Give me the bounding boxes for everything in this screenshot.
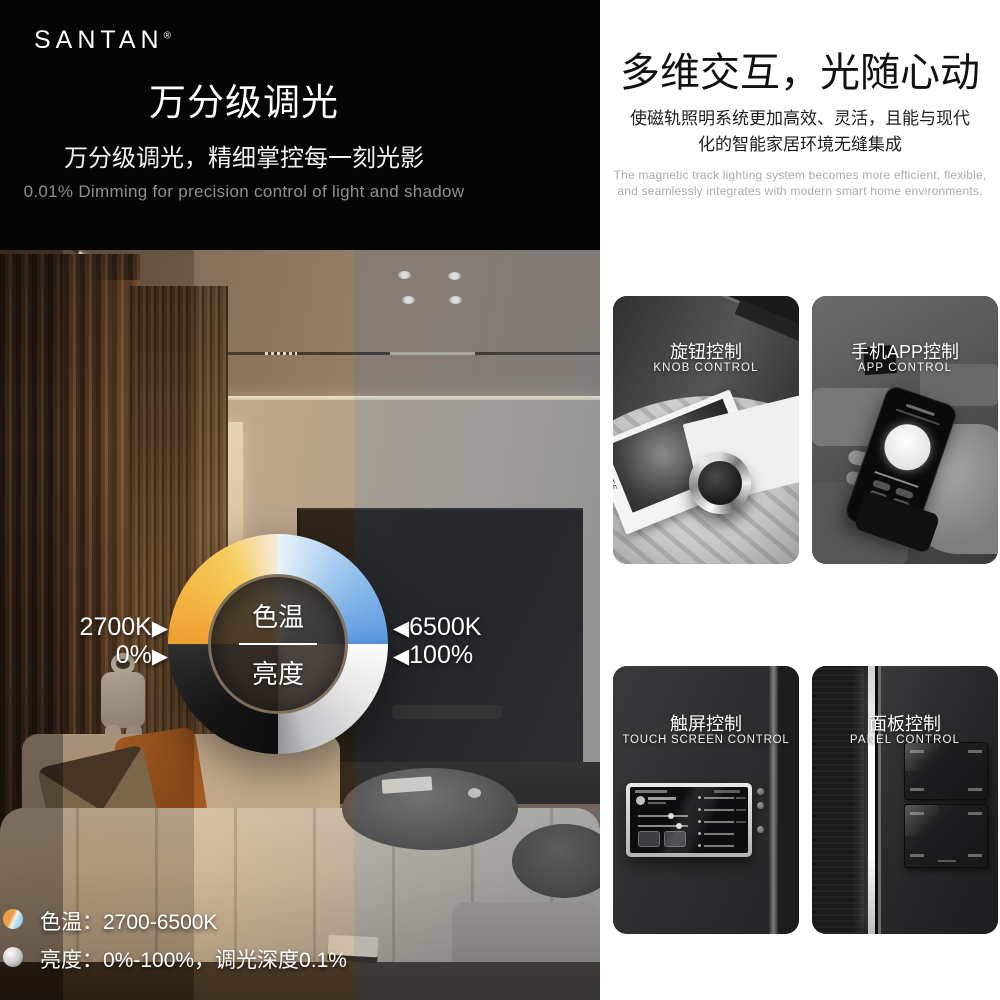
poster: SANTAN® 万分级调光 万分级调光，精细掌控每一刻光影 0.01% Dimm… — [0, 0, 1000, 1000]
app-button — [895, 487, 914, 499]
card-title: 触屏控制 — [613, 710, 799, 736]
dial-divider-line — [239, 643, 317, 645]
switch-label — [968, 750, 982, 753]
knob-face — [698, 461, 742, 505]
card-subtitle: KNOB CONTROL — [613, 362, 799, 374]
dial-label-0-percent: 0%▶ — [40, 642, 168, 670]
card-knob-control: 2CHIETE 旋钮控制 KNOB CONTROL — [613, 296, 799, 564]
wall-button-dot — [757, 788, 764, 795]
color-temp-bullet-icon — [3, 909, 23, 929]
panel-sheen — [905, 805, 939, 836]
wall-switch-panel — [904, 804, 988, 868]
arrow-right-icon: ▶ — [152, 617, 168, 640]
dial-label-6500k: ◀6500K — [393, 614, 481, 642]
value-100-percent: 100% — [409, 641, 473, 669]
brand-name: SANTAN — [34, 26, 164, 54]
spec-text-color-temp: 色温：2700-6500K — [40, 906, 217, 936]
card-title: 手机APP控制 — [812, 338, 998, 364]
card-subtitle: APP CONTROL — [812, 362, 998, 374]
brand-logo: SANTAN® — [34, 26, 171, 55]
right-description-line2: 化的智能家居环境无缝集成 — [600, 132, 1000, 158]
dial-label-color-temp: 色温 — [252, 597, 304, 634]
spec-row-brightness: 亮度：0%-100%，调光深度0.1% — [0, 946, 600, 972]
value-6500k: 6500K — [409, 613, 481, 641]
arrow-left-icon: ◀ — [393, 645, 409, 668]
screen-glare — [630, 787, 748, 853]
dark-door — [812, 666, 864, 934]
card-title: 面板控制 — [812, 710, 998, 736]
switch-label — [910, 788, 924, 791]
right-description-en-line2: and seamlessly integrates with modern sm… — [600, 184, 1000, 200]
brightness-bullet-icon — [3, 947, 23, 967]
door-edge — [778, 666, 799, 934]
wall-button-dot — [757, 802, 764, 809]
right-description-line1: 使磁轨照明系统更加高效、灵活，且能与现代 — [600, 106, 1000, 132]
right-description: 使磁轨照明系统更加高效、灵活，且能与现代 化的智能家居环境无缝集成 — [600, 106, 1000, 158]
right-description-en: The magnetic track lighting system becom… — [600, 168, 1000, 199]
dial-label-brightness: 亮度 — [252, 654, 304, 691]
switch-label — [968, 854, 982, 857]
right-title: 多维交互，光随心动 — [600, 40, 1000, 98]
card-panel-control: 面板控制 PANEL CONTROL — [812, 666, 998, 934]
right-description-en-line1: The magnetic track lighting system becom… — [600, 168, 1000, 184]
value-2700k: 2700K — [80, 613, 152, 641]
arrow-right-icon: ▶ — [152, 645, 168, 668]
switch-label — [910, 750, 924, 753]
left-header: SANTAN® 万分级调光 万分级调光，精细掌控每一刻光影 0.01% Dimm… — [0, 0, 600, 250]
panel-brand-mark — [938, 860, 956, 862]
dimming-dial-center: 色温 亮度 — [208, 574, 348, 714]
left-subtitle: 万分级调光，精细掌控每一刻光影 — [0, 138, 488, 173]
card-subtitle: PANEL CONTROL — [812, 734, 998, 746]
switch-label — [910, 854, 924, 857]
touch-screen-panel — [626, 783, 752, 857]
registered-mark-icon: ® — [164, 31, 171, 42]
rotary-knob — [689, 452, 751, 514]
card-app-control: 手机APP控制 APP CONTROL — [812, 296, 998, 564]
switch-label — [910, 812, 924, 815]
wall-surface — [881, 666, 998, 934]
value-0-percent: 0% — [116, 641, 152, 669]
touch-screen — [630, 787, 748, 853]
dial-label-2700k: 2700K▶ — [40, 614, 168, 642]
arrow-left-icon: ◀ — [393, 617, 409, 640]
living-room-photo: 色温 亮度 2700K▶ 0%▶ ◀6500K ◀100% 色温：2700-65… — [0, 250, 600, 1000]
app-dimmer-dial — [878, 418, 936, 476]
left-title: 万分级调光 — [0, 72, 488, 126]
spec-text-brightness: 亮度：0%-100%，调光深度0.1% — [40, 944, 347, 974]
app-subheader-line — [896, 409, 940, 426]
light-strip — [868, 666, 875, 934]
dial-label-100-percent: ◀100% — [393, 642, 473, 670]
panel-sheen — [905, 743, 939, 771]
card-title: 旋钮控制 — [613, 338, 799, 364]
app-button — [872, 479, 891, 491]
spec-row-color-temp: 色温：2700-6500K — [0, 908, 600, 934]
left-subtitle-en: 0.01% Dimming for precision control of l… — [0, 182, 488, 202]
switch-label — [968, 812, 982, 815]
wall-switch-panel — [904, 742, 988, 800]
card-subtitle: TOUCH SCREEN CONTROL — [613, 734, 799, 746]
card-touchscreen-control: 触屏控制 TOUCH SCREEN CONTROL — [613, 666, 799, 934]
switch-label — [968, 788, 982, 791]
door-edge-highlight — [769, 666, 778, 934]
wall-button-dot — [757, 826, 764, 833]
